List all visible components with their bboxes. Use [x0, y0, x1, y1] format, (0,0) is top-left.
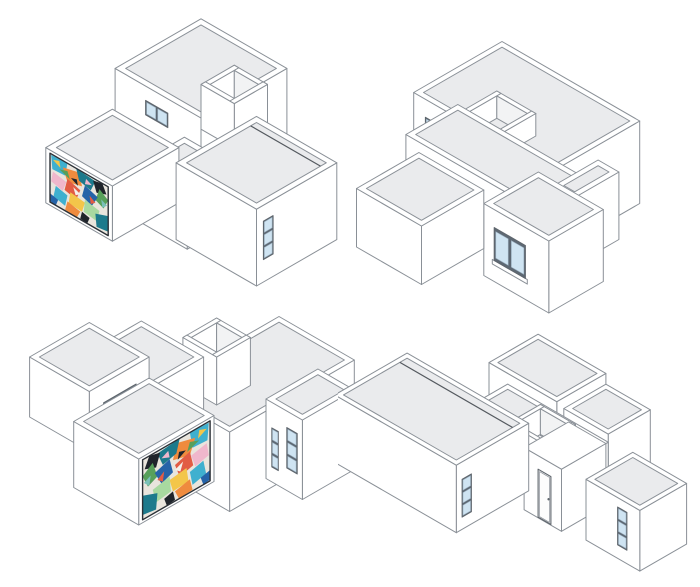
axonometric-view-bottom-left: [28, 306, 358, 578]
axonometric-view-top-right-drawing: [352, 36, 692, 321]
axonometric-view-top-left: [40, 2, 360, 302]
figure-canvas: [0, 0, 700, 587]
door-handle-icon: [547, 498, 549, 500]
axonometric-view-bottom-left-drawing: [28, 306, 358, 578]
axonometric-view-bottom-right-drawing: [338, 330, 700, 585]
axonometric-view-top-right: [352, 36, 692, 321]
axonometric-view-top-left-drawing: [40, 2, 360, 302]
axonometric-view-bottom-right: [338, 330, 700, 585]
